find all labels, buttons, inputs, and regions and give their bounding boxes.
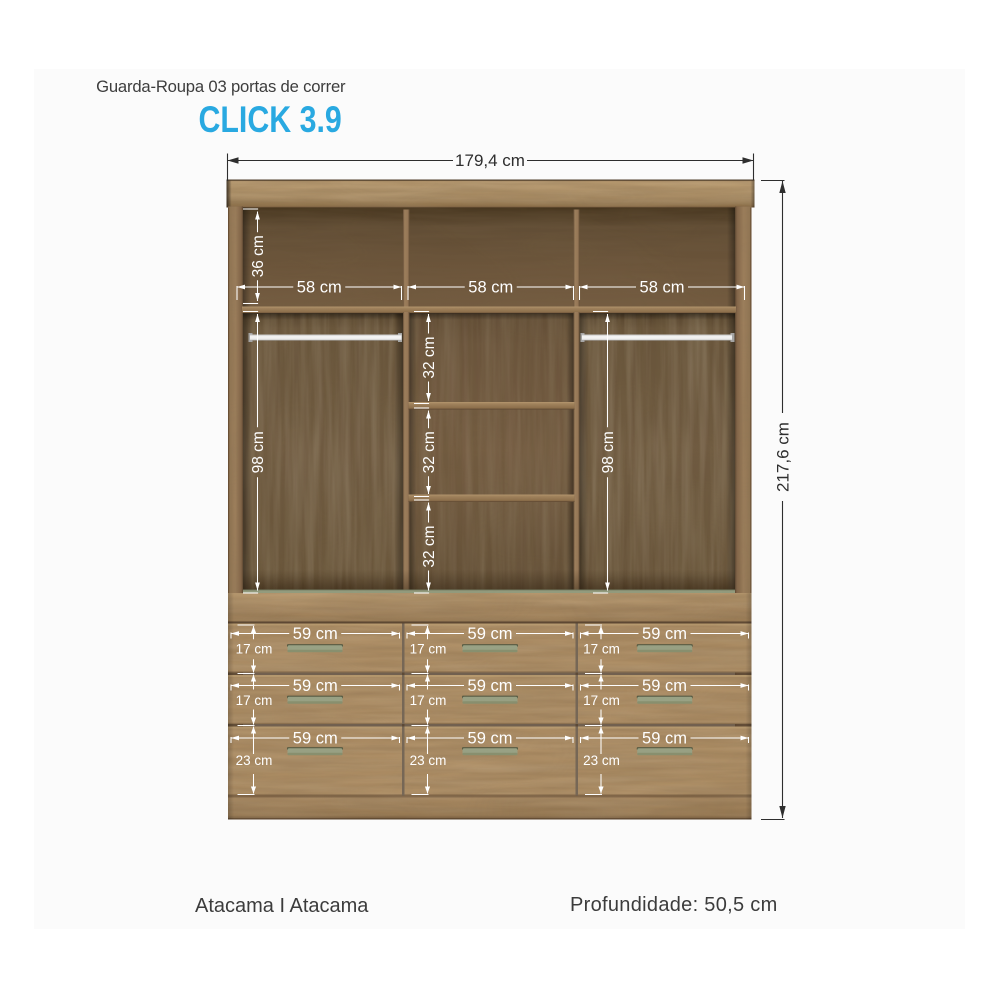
svg-text:59 cm: 59 cm	[293, 677, 338, 695]
svg-text:17 cm: 17 cm	[583, 693, 620, 708]
svg-text:23 cm: 23 cm	[236, 753, 273, 768]
svg-text:36 cm: 36 cm	[250, 235, 267, 277]
svg-text:58 cm: 58 cm	[640, 279, 685, 297]
svg-text:32 cm: 32 cm	[421, 336, 438, 378]
svg-text:17 cm: 17 cm	[410, 693, 447, 708]
svg-text:59 cm: 59 cm	[642, 730, 687, 748]
svg-text:58 cm: 58 cm	[468, 279, 513, 297]
svg-text:58 cm: 58 cm	[297, 279, 342, 297]
svg-text:17 cm: 17 cm	[583, 642, 620, 657]
svg-text:217,6 cm: 217,6 cm	[773, 422, 792, 492]
svg-text:23 cm: 23 cm	[583, 753, 620, 768]
svg-text:23 cm: 23 cm	[410, 753, 447, 768]
svg-text:59 cm: 59 cm	[642, 677, 687, 695]
svg-text:98 cm: 98 cm	[600, 431, 617, 473]
svg-text:17 cm: 17 cm	[410, 642, 447, 657]
svg-text:59 cm: 59 cm	[293, 730, 338, 748]
svg-text:32 cm: 32 cm	[421, 525, 438, 567]
svg-text:59 cm: 59 cm	[293, 625, 338, 643]
svg-text:59 cm: 59 cm	[468, 730, 513, 748]
svg-text:17 cm: 17 cm	[236, 642, 273, 657]
svg-text:59 cm: 59 cm	[468, 625, 513, 643]
svg-text:32 cm: 32 cm	[421, 431, 438, 473]
svg-text:98 cm: 98 cm	[250, 431, 267, 473]
svg-text:59 cm: 59 cm	[642, 625, 687, 643]
svg-text:59 cm: 59 cm	[468, 677, 513, 695]
svg-text:17 cm: 17 cm	[236, 693, 273, 708]
svg-text:179,4 cm: 179,4 cm	[455, 151, 525, 170]
